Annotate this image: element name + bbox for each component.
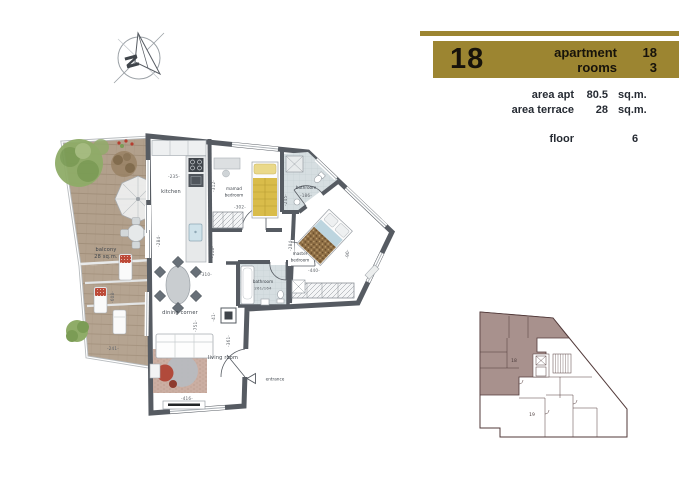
dim-mamad-width: -302-	[234, 205, 246, 210]
red-pouf-small	[169, 380, 177, 388]
dim-kitchen-width: -235-	[168, 174, 180, 179]
sink-icon	[261, 299, 269, 305]
dim-shaft: -41-	[211, 312, 216, 321]
sink-icon	[294, 199, 300, 205]
living-label: living room	[208, 355, 238, 361]
dim-corridor: -118-	[210, 246, 215, 258]
dim-master-side: -90-	[345, 249, 350, 258]
bed	[252, 162, 278, 218]
sink-icon	[189, 224, 202, 241]
dim-balcony-length: -608-	[110, 291, 115, 303]
dim-living-width: -361-	[226, 335, 231, 347]
desk-chair	[223, 170, 230, 177]
shaft	[221, 308, 236, 323]
bathroom-center-label: bathroom	[253, 279, 273, 284]
apartment-interior: kitchen -235- -284- mamad bedroom -302- …	[147, 136, 393, 413]
key-plan: 18 19	[480, 312, 627, 437]
dim-tv-wall: -416-	[181, 396, 193, 401]
master-label-2: bedroom	[291, 258, 310, 263]
dining-label: dining corner	[162, 310, 198, 316]
kitchen-label: kitchen	[161, 189, 181, 195]
entrance-label: entrance	[266, 377, 285, 382]
balcony-area-label: 28 sq.m.	[94, 254, 118, 260]
compass-north-arrow: N	[114, 33, 164, 83]
key-plan-unit-18-number: 18	[511, 358, 517, 364]
shower	[286, 156, 303, 172]
lounge-chair-2	[94, 287, 107, 313]
dim-master-height: -284-	[288, 239, 293, 251]
side-table	[150, 364, 160, 378]
dim-dining-width: -310-	[200, 272, 212, 277]
lounge-chair-3	[113, 310, 126, 334]
dim-bath-top-height: -245-	[283, 194, 288, 206]
wardrobe	[213, 212, 243, 228]
sofa	[156, 334, 213, 358]
balcony-label: balcony	[96, 247, 117, 253]
desk	[214, 158, 240, 169]
dim-master-width: -440-	[308, 268, 320, 273]
shrub	[111, 151, 137, 177]
dim-mamad-height: -312-	[211, 180, 216, 192]
master-label-1: master	[293, 251, 308, 256]
key-plan-unit-19-number: 19	[529, 412, 535, 418]
dim-bath-top-width: -186-	[300, 193, 312, 198]
tv-console	[163, 401, 205, 409]
entrance-marker: entrance	[247, 374, 285, 384]
dim-kitchen-height: -284-	[156, 235, 161, 247]
washer-icon	[292, 280, 305, 293]
floor-plan-sheet: N	[0, 0, 679, 480]
bathroom-center-size: 261/164	[254, 286, 272, 291]
stove-icon	[189, 158, 204, 172]
mamad-label-1: mamad	[226, 186, 242, 191]
compass-north-letter: N	[119, 52, 142, 71]
dim-living-length: -751-	[193, 320, 198, 332]
toilet-icon	[277, 291, 284, 304]
dim-balcony-width: -241-	[107, 346, 119, 351]
key-plan-elevators	[533, 354, 549, 377]
key-plan-stairs	[553, 354, 571, 373]
lounge-chair-1	[119, 254, 132, 280]
dining-table	[166, 266, 190, 304]
bathroom-top-label: bathroom	[296, 185, 316, 190]
mamad-label-2: bedroom	[225, 193, 244, 198]
